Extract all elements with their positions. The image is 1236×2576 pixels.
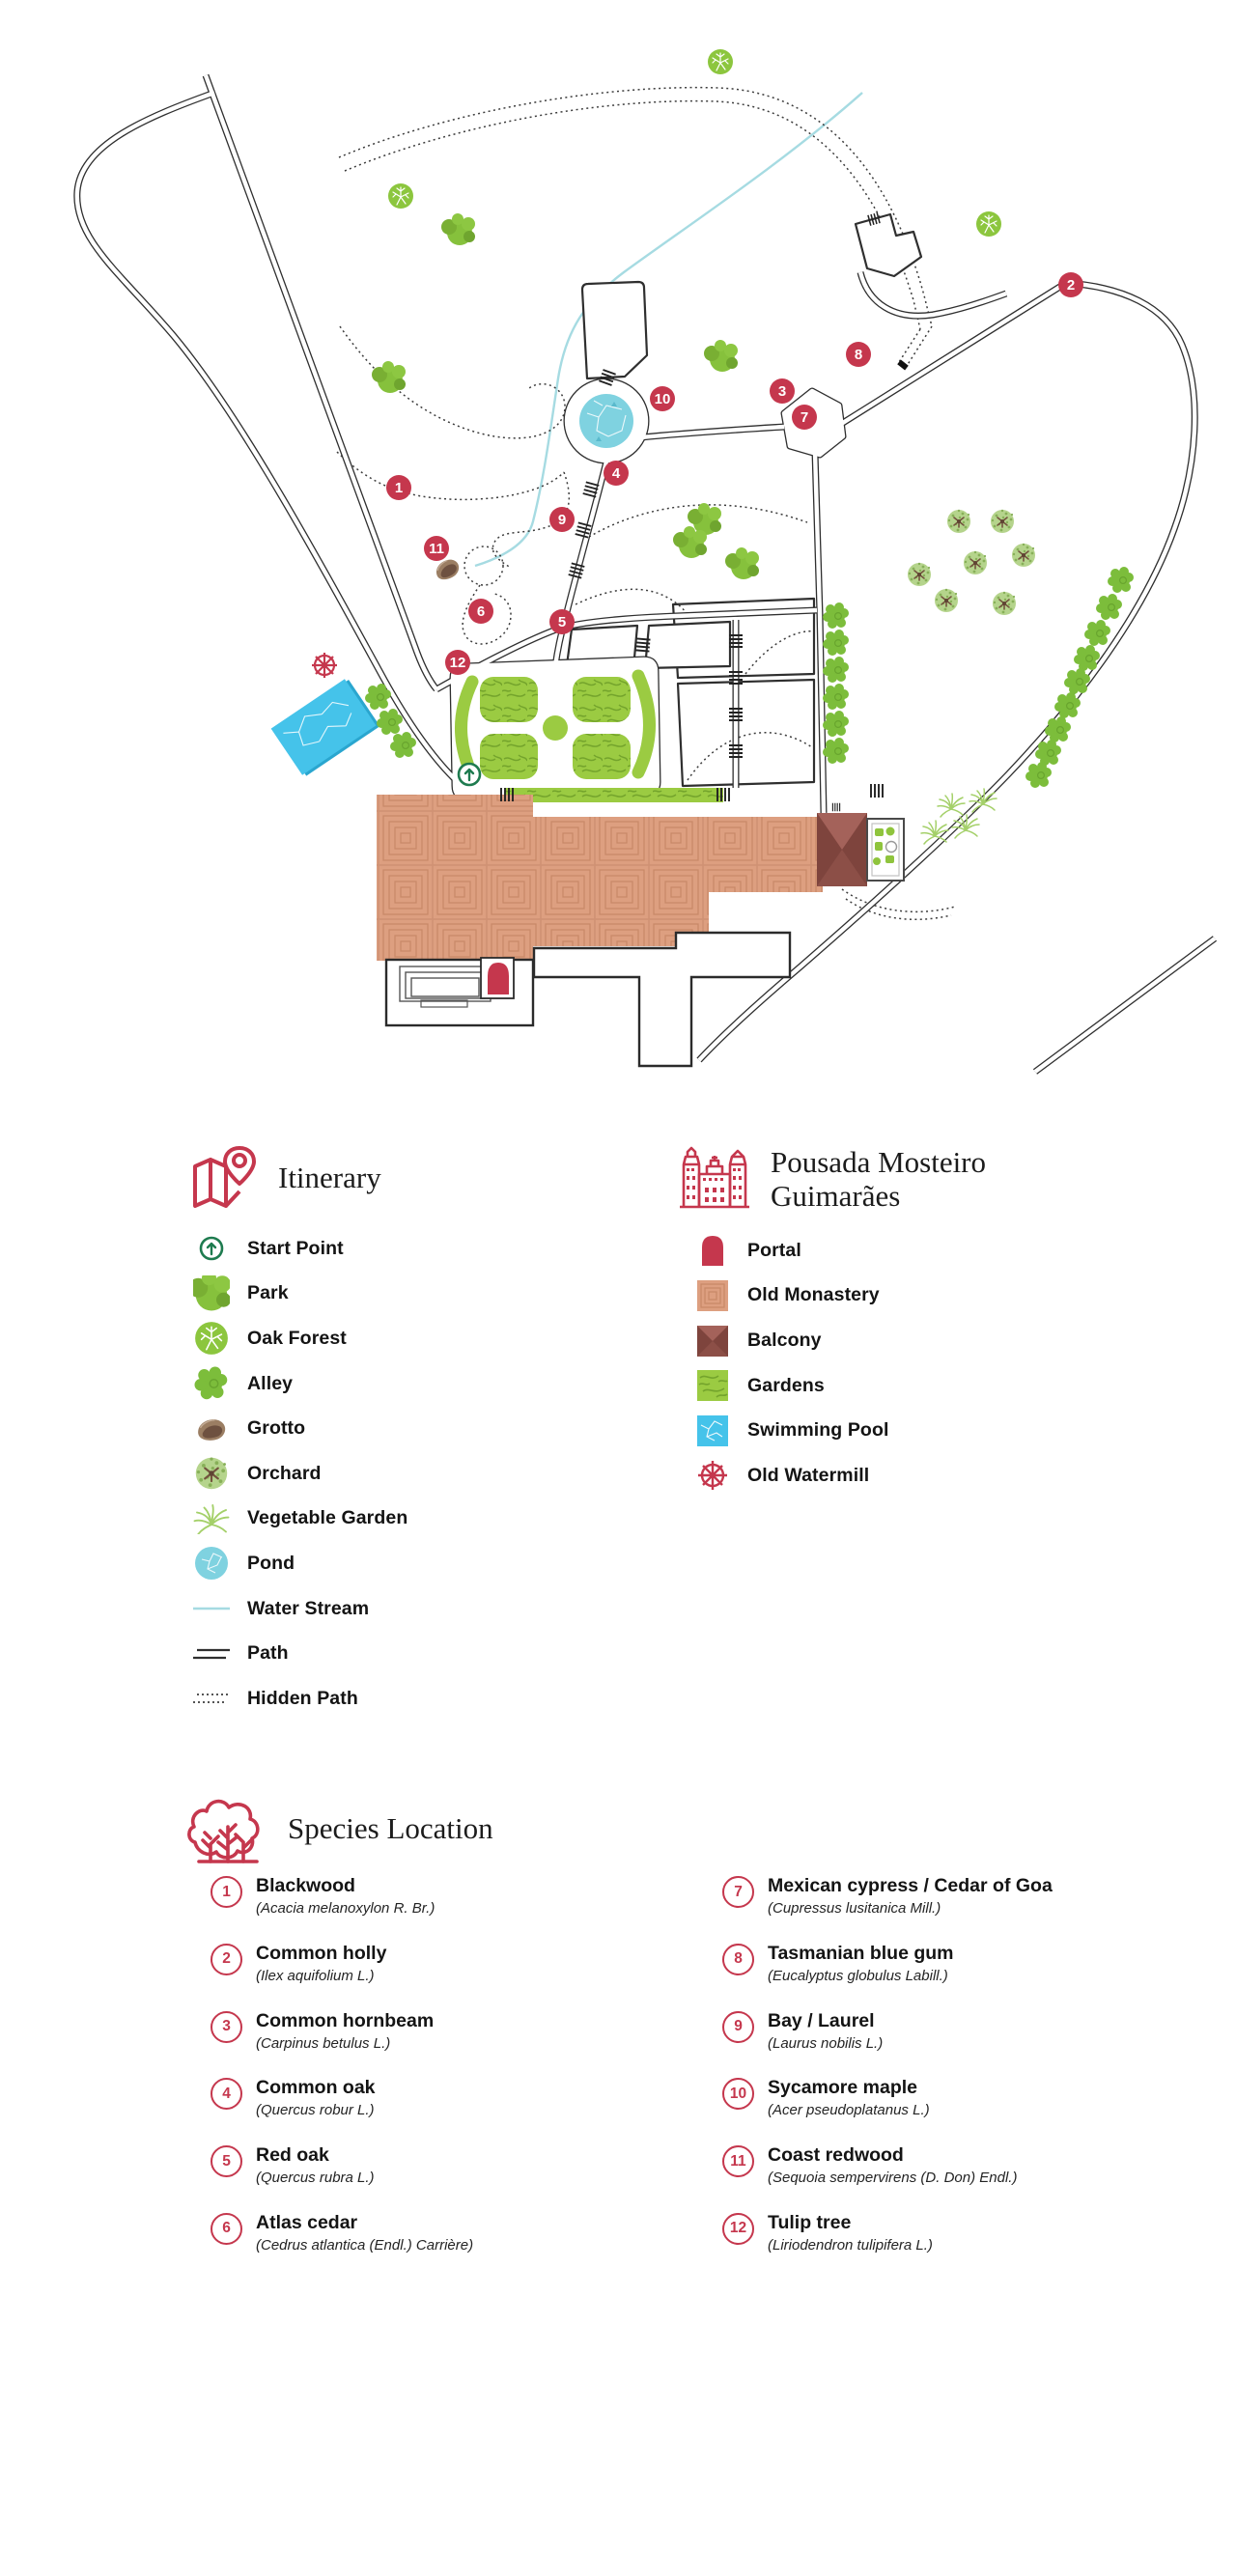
frond-tree-icon xyxy=(921,821,948,844)
svg-text:6: 6 xyxy=(477,603,485,620)
legend-item-start-point: Start Point xyxy=(189,1226,643,1272)
legend-item-hidden-path: Hidden Path xyxy=(189,1676,643,1722)
species-trees-icon xyxy=(185,1788,270,1869)
species-name: Bay / Laurel xyxy=(768,2010,883,2032)
oak-tree-icon xyxy=(388,183,413,209)
map-marker-4: 4 xyxy=(604,461,629,486)
park-tree-icon xyxy=(725,547,759,579)
alley-tree-icon xyxy=(1035,740,1061,766)
species-item-11: 11 Coast redwood (Sequoia sempervirens (… xyxy=(722,2144,1186,2212)
legend-item-park: Park xyxy=(189,1272,643,1317)
legend-item-portal: Portal xyxy=(691,1228,1091,1274)
svg-text:1: 1 xyxy=(395,480,403,496)
itinerary-items: Start Point Park Oak Forest Alley xyxy=(189,1226,643,1722)
alley-tree-icon xyxy=(823,630,849,656)
species-number: 10 xyxy=(730,2086,746,2103)
svg-text:12: 12 xyxy=(450,655,466,671)
church-building xyxy=(534,933,790,1066)
species-latin-name: (Cupressus lusitanica Mill.) xyxy=(768,1900,1053,1917)
species-latin-name: (Cedrus atlantica (Endl.) Carrière) xyxy=(256,2237,473,2254)
svg-text:9: 9 xyxy=(558,512,566,528)
legend-item-label: Grotto xyxy=(247,1417,305,1440)
species-number: 1 xyxy=(222,1884,231,1901)
svg-text:2: 2 xyxy=(1067,277,1075,294)
species-name: Common oak xyxy=(256,2077,376,2099)
map-marker-6: 6 xyxy=(468,599,493,624)
legend-item-balcony: Balcony xyxy=(691,1318,1091,1363)
svg-text:3: 3 xyxy=(778,383,786,400)
species-latin-name: (Eucalyptus globulus Labill.) xyxy=(768,1968,954,1984)
map-marker-11: 11 xyxy=(424,536,449,561)
alley-tree-icon xyxy=(823,738,849,764)
species-name: Tasmanian blue gum xyxy=(768,1943,954,1965)
park-tree-icon xyxy=(704,340,738,372)
map-marker-3: 3 xyxy=(770,378,795,404)
start-point-layer xyxy=(459,764,480,785)
balcony-icon xyxy=(691,1326,734,1357)
species-name: Mexican cypress / Cedar of Goa xyxy=(768,1875,1053,1897)
old-monastery-icon xyxy=(691,1280,734,1311)
legend-item-vegetable-garden: Vegetable Garden xyxy=(189,1497,643,1542)
species-latin-name: (Liriodendron tulipifera L.) xyxy=(768,2237,933,2254)
species-item-7: 7 Mexican cypress / Cedar of Goa (Cupres… xyxy=(722,1875,1186,1943)
species-number-badge: 6 xyxy=(211,2213,242,2245)
species-number: 12 xyxy=(730,2220,746,2237)
species-number-badge: 1 xyxy=(211,1876,242,1908)
species-item-1: 1 Blackwood (Acacia melanoxylon R. Br.) xyxy=(211,1875,664,1943)
water-stream xyxy=(475,93,862,566)
alley-tree-icon xyxy=(823,602,849,629)
pousada-items: Portal Old Monastery xyxy=(691,1228,1091,1498)
legend-item-label: Park xyxy=(247,1282,289,1304)
park-tree-icon xyxy=(441,213,475,245)
svg-text:10: 10 xyxy=(655,391,671,407)
alley-tree-icon xyxy=(823,711,849,737)
species-latin-name: (Laurus nobilis L.) xyxy=(768,2035,883,2052)
map-marker-10: 10 xyxy=(650,386,675,411)
estate-map: 123456789101112 xyxy=(0,0,1236,1101)
old-watermill-icon xyxy=(691,1459,734,1492)
legend-item-label: Portal xyxy=(747,1240,801,1262)
map-marker-9: 9 xyxy=(549,507,575,532)
frond-tree-icon xyxy=(938,794,965,817)
species-name: Common hornbeam xyxy=(256,2010,434,2032)
species-item-2: 2 Common holly (Ilex aquifolium L.) xyxy=(211,1943,664,2010)
park-tree-icon xyxy=(673,526,707,558)
species-latin-name: (Acacia melanoxylon R. Br.) xyxy=(256,1900,435,1917)
itinerary-map-icon xyxy=(189,1145,261,1211)
itinerary-header: Itinerary xyxy=(189,1145,643,1211)
legend-item-label: Gardens xyxy=(747,1375,825,1397)
orchard-tree-icon xyxy=(935,589,958,612)
species-latin-name: (Ilex aquifolium L.) xyxy=(256,1968,386,1984)
courtyard-garden xyxy=(867,819,904,881)
alley-tree-icon xyxy=(1025,762,1052,788)
legend-item-orchard: Orchard xyxy=(189,1451,643,1497)
start-point-icon xyxy=(459,764,480,785)
species-number: 4 xyxy=(222,2086,231,2103)
park-icon xyxy=(189,1275,234,1312)
legend-item-label: Hidden Path xyxy=(247,1688,358,1710)
legend-item-alley: Alley xyxy=(189,1361,643,1407)
oak-forest-icon xyxy=(189,1321,234,1356)
species-item-8: 8 Tasmanian blue gum (Eucalyptus globulu… xyxy=(722,1943,1186,2010)
alley-tree-icon xyxy=(1096,594,1122,620)
orchard-tree-icon xyxy=(993,592,1016,615)
species-item-5: 5 Red oak (Quercus rubra L.) xyxy=(211,2144,664,2212)
map-marker-2: 2 xyxy=(1058,272,1083,297)
species-number: 7 xyxy=(734,1884,743,1901)
old-watermill xyxy=(312,653,337,678)
legend-item-water-stream: Water Stream xyxy=(189,1586,643,1632)
upper-building xyxy=(582,282,647,378)
svg-text:5: 5 xyxy=(558,614,566,630)
legend-item-old-monastery: Old Monastery xyxy=(691,1274,1091,1319)
species-number: 6 xyxy=(222,2220,231,2237)
species-number-badge: 11 xyxy=(722,2145,754,2177)
balcony-building xyxy=(817,803,867,886)
orchard-tree-icon xyxy=(908,563,931,586)
species-latin-name: (Acer pseudoplatanus L.) xyxy=(768,2102,930,2118)
species-number-badge: 7 xyxy=(722,1876,754,1908)
species-latin-name: (Sequoia sempervirens (D. Don) Endl.) xyxy=(768,2170,1017,2186)
legend-item-path: Path xyxy=(189,1631,643,1676)
monastery-icon xyxy=(676,1145,753,1213)
species-number-badge: 9 xyxy=(722,2011,754,2043)
orchard-icon xyxy=(189,1456,234,1491)
legend-item-gardens: Gardens xyxy=(691,1363,1091,1409)
legend-item-label: Old Monastery xyxy=(747,1284,880,1306)
hidden-path-icon xyxy=(189,1691,234,1706)
oak-tree-icon xyxy=(976,211,1001,237)
legend-item-pond: Pond xyxy=(189,1541,643,1586)
species-section: Species Location xyxy=(185,1788,1103,1869)
species-item-3: 3 Common hornbeam (Carpinus betulus L.) xyxy=(211,2010,664,2078)
species-number: 2 xyxy=(222,1950,231,1968)
map-marker-5: 5 xyxy=(549,609,575,634)
vegetable-garden-icon xyxy=(189,1503,234,1534)
itinerary-title: Itinerary xyxy=(278,1161,381,1194)
species-latin-name: (Quercus robur L.) xyxy=(256,2102,376,2118)
pond xyxy=(579,394,633,448)
species-column-left: 1 Blackwood (Acacia melanoxylon R. Br.) … xyxy=(211,1875,664,2280)
species-name: Tulip tree xyxy=(768,2212,933,2234)
legend-item-swimming-pool: Swimming Pool xyxy=(691,1408,1091,1453)
park-tree-icon xyxy=(372,361,406,393)
legend-item-label: Vegetable Garden xyxy=(247,1507,407,1529)
legend-item-label: Pond xyxy=(247,1553,295,1575)
orchard-tree-icon xyxy=(947,510,970,533)
species-latin-name: (Carpinus betulus L.) xyxy=(256,2035,434,2052)
alley-tree-icon xyxy=(1064,668,1090,694)
legend-item-label: Old Watermill xyxy=(747,1465,869,1487)
itinerary-legend: Itinerary Start Point Park Oak Forest xyxy=(189,1145,643,1722)
portal-icon xyxy=(691,1235,734,1266)
species-name: Blackwood xyxy=(256,1875,435,1897)
legend-item-label: Balcony xyxy=(747,1330,822,1352)
species-number-badge: 10 xyxy=(722,2078,754,2110)
species-name: Atlas cedar xyxy=(256,2212,473,2234)
species-number: 9 xyxy=(734,2018,743,2035)
orchard-tree-icon xyxy=(991,510,1014,533)
species-number-badge: 12 xyxy=(722,2213,754,2245)
map-marker-1: 1 xyxy=(386,475,411,500)
alley-tree-icon xyxy=(1045,716,1071,742)
species-name: Coast redwood xyxy=(768,2144,1017,2167)
svg-text:11: 11 xyxy=(429,541,444,557)
alley-tree-icon xyxy=(823,684,849,710)
pond-icon xyxy=(189,1546,234,1581)
alley-tree-icon xyxy=(390,732,416,758)
pousada-title: Pousada Mosteiro Guimarães xyxy=(771,1145,986,1213)
svg-text:7: 7 xyxy=(801,409,808,426)
species-number-badge: 3 xyxy=(211,2011,242,2043)
svg-text:4: 4 xyxy=(612,465,621,482)
gate-mark xyxy=(897,360,909,371)
species-number: 11 xyxy=(730,2153,745,2170)
legend-item-label: Oak Forest xyxy=(247,1328,347,1350)
species-number-badge: 2 xyxy=(211,1944,242,1975)
gardens-icon xyxy=(691,1370,734,1401)
species-name: Red oak xyxy=(256,2144,375,2167)
swimming-pool xyxy=(271,678,380,778)
legend-item-label: Water Stream xyxy=(247,1598,369,1620)
svg-text:8: 8 xyxy=(855,347,862,363)
hedge-strip xyxy=(505,788,723,802)
species-header: Species Location xyxy=(185,1788,1103,1869)
water-stream-icon xyxy=(189,1604,234,1613)
species-number-badge: 4 xyxy=(211,2078,242,2110)
species-item-12: 12 Tulip tree (Liriodendron tulipifera L… xyxy=(722,2212,1186,2280)
species-number: 5 xyxy=(222,2153,231,2170)
species-number: 3 xyxy=(222,2018,231,2035)
alley-tree-icon xyxy=(1084,620,1110,646)
start-point-icon xyxy=(189,1235,234,1262)
alley-tree-icon xyxy=(377,709,403,735)
lookout-structure xyxy=(856,214,921,276)
legend-item-label: Swimming Pool xyxy=(747,1419,888,1442)
swimming-pool-icon xyxy=(691,1415,734,1446)
species-column-right: 7 Mexican cypress / Cedar of Goa (Cupres… xyxy=(722,1875,1186,2280)
legend-item-grotto: Grotto xyxy=(189,1406,643,1451)
species-number-badge: 5 xyxy=(211,2145,242,2177)
map-marker-7: 7 xyxy=(792,405,817,430)
alley-tree-icon xyxy=(1074,645,1100,671)
species-title: Species Location xyxy=(288,1811,493,1845)
path-icon xyxy=(189,1646,234,1662)
legend-item-old-watermill: Old Watermill xyxy=(691,1453,1091,1498)
legend-item-label: Alley xyxy=(247,1373,293,1395)
legend-item-label: Orchard xyxy=(247,1463,322,1485)
species-item-6: 6 Atlas cedar (Cedrus atlantica (Endl.) … xyxy=(211,2212,664,2280)
species-number: 8 xyxy=(734,1950,743,1968)
alley-tree-icon xyxy=(823,657,849,683)
species-item-10: 10 Sycamore maple (Acer pseudoplatanus L… xyxy=(722,2077,1186,2144)
legend-item-label: Path xyxy=(247,1642,289,1665)
species-latin-name: (Quercus rubra L.) xyxy=(256,2170,375,2186)
pousada-header: Pousada Mosteiro Guimarães xyxy=(676,1145,1091,1213)
species-number-badge: 8 xyxy=(722,1944,754,1975)
grotto-icon xyxy=(189,1414,234,1443)
portal xyxy=(481,958,514,998)
orchard-tree-icon xyxy=(964,551,987,574)
map-marker-12: 12 xyxy=(445,650,470,675)
species-item-4: 4 Common oak (Quercus robur L.) xyxy=(211,2077,664,2144)
species-item-9: 9 Bay / Laurel (Laurus nobilis L.) xyxy=(722,2010,1186,2078)
map-marker-8: 8 xyxy=(846,342,871,367)
legend-item-oak-forest: Oak Forest xyxy=(189,1316,643,1361)
species-name: Common holly xyxy=(256,1943,386,1965)
orchard-tree-icon xyxy=(1012,544,1035,567)
species-name: Sycamore maple xyxy=(768,2077,930,2099)
alley-tree-icon xyxy=(1108,567,1134,593)
legend-item-label: Start Point xyxy=(247,1238,344,1260)
pousada-legend: Pousada Mosteiro Guimarães Portal xyxy=(676,1145,1091,1498)
oak-tree-icon xyxy=(708,49,733,74)
alley-icon xyxy=(189,1366,234,1401)
garden-map-page: 123456789101112 Itinerary Start Point xyxy=(0,0,1236,2576)
